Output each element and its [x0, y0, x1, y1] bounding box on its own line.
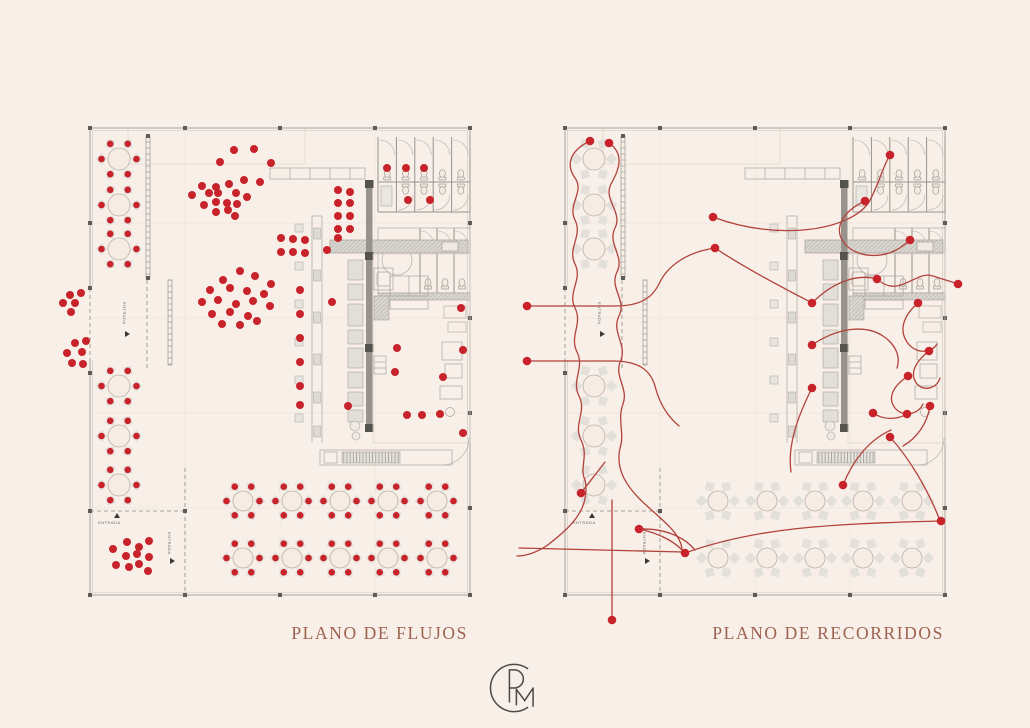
plan-title-recorridos: PLANO DE RECORRIDOS — [712, 623, 944, 644]
plan-title-flujos: PLANO DE FLUJOS — [291, 623, 468, 644]
dining-table — [571, 416, 618, 457]
route-path — [891, 376, 923, 414]
chair-dots-layer — [98, 141, 457, 576]
route-path — [609, 143, 682, 552]
routes-layer — [517, 141, 958, 620]
route-path — [715, 248, 812, 303]
dining-table — [793, 539, 838, 578]
crm-monogram-logo — [487, 656, 543, 720]
dining-table — [745, 539, 790, 578]
plan-base: ENTRADAENTRADAENTRADA — [88, 126, 472, 597]
route-path — [903, 303, 937, 351]
presentation-board: { "titles": { "left": "PLANO DE FLUJOS",… — [0, 0, 1030, 728]
dining-table — [841, 539, 886, 578]
dining-table — [696, 539, 741, 578]
dining-table — [571, 465, 618, 506]
dining-table — [571, 366, 618, 407]
floor-plan-flujos: ENTRADAENTRADAENTRADA — [40, 116, 490, 628]
dining-table — [696, 482, 741, 521]
logo-letter-paths — [490, 664, 533, 711]
route-path — [519, 548, 683, 552]
entrance-label: ENTRADA — [122, 302, 127, 325]
dining-table — [571, 229, 618, 270]
floor-plan-recorridos: ENTRADAENTRADAENTRADA — [515, 116, 965, 628]
entrance-label: ENTRADA — [98, 520, 121, 525]
entrance-label: ENTRADA — [573, 520, 596, 525]
route-path — [873, 413, 907, 418]
dining-table — [793, 482, 838, 521]
route-path — [913, 351, 940, 388]
dining-table — [745, 482, 790, 521]
dining-table — [890, 539, 935, 578]
dining-table — [841, 482, 886, 521]
entrance-label: ENTRADA — [167, 532, 172, 555]
dining-table — [890, 482, 935, 521]
